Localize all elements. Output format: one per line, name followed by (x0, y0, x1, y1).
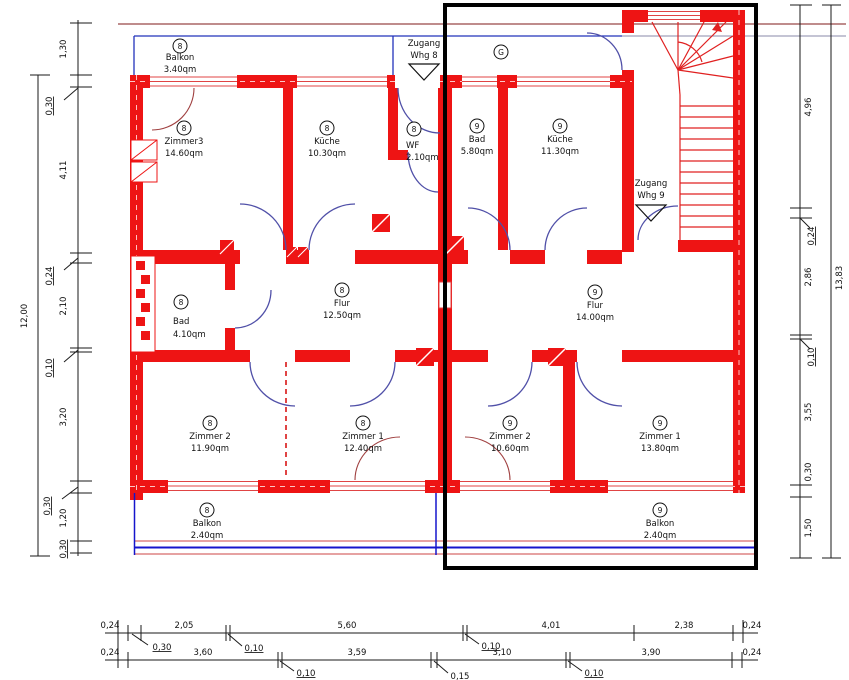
svg-text:Zimmer 1: Zimmer 1 (342, 432, 384, 442)
access-whg8: Zugang Whg 8 (408, 39, 441, 80)
svg-text:4,01: 4,01 (542, 621, 561, 631)
svg-text:0,10: 0,10 (807, 348, 817, 367)
svg-text:0,15: 0,15 (451, 672, 470, 680)
access-arrow-whg8 (409, 64, 439, 80)
svg-text:2.10qm: 2.10qm (406, 153, 439, 163)
svg-text:0,10: 0,10 (245, 644, 264, 654)
room-label-flur9: 9 Flur 14.00qm (576, 285, 614, 323)
room-label-flur8: 8 Flur 12.50qm (323, 283, 361, 321)
svg-text:4.10qm: 4.10qm (173, 330, 206, 340)
svg-text:Whg 8: Whg 8 (410, 51, 437, 61)
svg-text:8: 8 (208, 419, 213, 428)
room-label-bad8: 8 Bad 4.10qm (173, 295, 206, 340)
svg-text:3,59: 3,59 (348, 648, 367, 658)
svg-text:13.80qm: 13.80qm (641, 444, 679, 454)
svg-text:2.40qm: 2.40qm (644, 531, 677, 541)
svg-text:WF: WF (406, 141, 419, 151)
corridor-label: G (494, 45, 508, 59)
svg-text:1,30: 1,30 (59, 40, 69, 59)
svg-text:5.80qm: 5.80qm (461, 147, 494, 157)
svg-text:Zugang: Zugang (635, 179, 668, 189)
balcony-top (134, 36, 622, 75)
svg-text:3,60: 3,60 (194, 648, 213, 658)
svg-text:0,10: 0,10 (297, 669, 316, 679)
svg-text:Balkon: Balkon (166, 53, 195, 63)
svg-text:8: 8 (361, 419, 366, 428)
svg-text:4,11: 4,11 (59, 161, 69, 180)
svg-text:2,86: 2,86 (804, 268, 814, 287)
svg-text:Zimmer 2: Zimmer 2 (489, 432, 531, 442)
svg-text:12.40qm: 12.40qm (344, 444, 382, 454)
svg-text:11.90qm: 11.90qm (191, 444, 229, 454)
svg-text:8: 8 (325, 124, 330, 133)
room-label-zimmer2-8: 8 Zimmer 2 11.90qm (189, 416, 231, 454)
svg-text:0,24: 0,24 (45, 267, 55, 286)
svg-text:8: 8 (179, 298, 184, 307)
svg-text:9: 9 (658, 506, 663, 515)
room-label-balkon8-bottom: 8 Balkon 2.40qm (191, 503, 224, 541)
svg-text:9: 9 (593, 288, 598, 297)
room-label-balkon8-top: 8 Balkon 3.40qm (164, 39, 197, 75)
floor-plan: 8 Balkon 3.40qm 8 Zimmer3 14.60qm 8 Küch… (0, 0, 849, 680)
svg-text:3,20: 3,20 (59, 408, 69, 427)
dimension-left: 1,30 0,30 4,11 0,24 2,10 0,10 3,20 0,30 … (20, 20, 92, 558)
svg-text:12,00: 12,00 (20, 304, 30, 328)
svg-text:0,10: 0,10 (585, 669, 604, 679)
svg-text:13,83: 13,83 (835, 266, 845, 290)
svg-text:Balkon: Balkon (646, 519, 675, 529)
svg-text:14.00qm: 14.00qm (576, 313, 614, 323)
svg-text:Whg 9: Whg 9 (637, 191, 664, 201)
svg-text:Küche: Küche (547, 135, 573, 145)
svg-text:8: 8 (340, 286, 345, 295)
svg-text:4,96: 4,96 (804, 98, 814, 117)
room-label-balkon9-bottom: 9 Balkon 2.40qm (644, 503, 677, 541)
room-label-zimmer1-8: 8 Zimmer 1 12.40qm (342, 416, 384, 454)
svg-text:9: 9 (558, 122, 563, 131)
svg-text:0,30: 0,30 (59, 540, 69, 559)
room-label-kueche8: 8 Küche 10.30qm (308, 121, 346, 159)
svg-text:3,90: 3,90 (642, 648, 661, 658)
svg-text:Zimmer3: Zimmer3 (165, 137, 204, 147)
svg-text:1,20: 1,20 (59, 509, 69, 528)
svg-text:9: 9 (475, 122, 480, 131)
svg-text:0,10: 0,10 (45, 359, 55, 378)
svg-text:9: 9 (508, 419, 513, 428)
room-label-bad9: 9 Bad 5.80qm (461, 119, 494, 157)
room-label-zimmer2-9: 9 Zimmer 2 10.60qm (489, 416, 531, 454)
svg-text:10.60qm: 10.60qm (491, 444, 529, 454)
svg-text:5,60: 5,60 (338, 621, 357, 631)
svg-text:0,24: 0,24 (743, 621, 762, 631)
room-label-zimmer1-9: 9 Zimmer 1 13.80qm (639, 416, 681, 454)
svg-text:Bad: Bad (173, 317, 189, 327)
svg-text:0,24: 0,24 (743, 648, 762, 658)
svg-text:Küche: Küche (314, 137, 340, 147)
svg-text:0,30: 0,30 (45, 97, 55, 116)
walls (130, 10, 745, 500)
svg-text:0,24: 0,24 (101, 648, 120, 658)
svg-text:14.60qm: 14.60qm (165, 149, 203, 159)
svg-text:3,55: 3,55 (804, 403, 814, 422)
svg-text:0,30: 0,30 (153, 643, 172, 653)
svg-text:1,50: 1,50 (804, 519, 814, 538)
access-arrow-whg9 (636, 205, 666, 221)
svg-text:8: 8 (178, 42, 183, 51)
svg-text:2,05: 2,05 (175, 621, 194, 631)
svg-text:9: 9 (658, 419, 663, 428)
svg-text:Bad: Bad (469, 135, 485, 145)
dimension-bottom-row2: 0,24 3,60 0,10 3,59 0,15 3,10 0,10 3,90 … (101, 648, 762, 680)
svg-text:2,38: 2,38 (675, 621, 694, 631)
svg-text:Balkon: Balkon (193, 519, 222, 529)
svg-text:10.30qm: 10.30qm (308, 149, 346, 159)
room-labels: 8 Balkon 3.40qm 8 Zimmer3 14.60qm 8 Küch… (164, 39, 681, 541)
svg-text:3.40qm: 3.40qm (164, 65, 197, 75)
svg-text:Flur: Flur (334, 299, 351, 309)
svg-text:2.40qm: 2.40qm (191, 531, 224, 541)
svg-text:8: 8 (182, 124, 187, 133)
svg-text:Flur: Flur (587, 301, 604, 311)
room-label-kueche9: 9 Küche 11.30qm (541, 119, 579, 157)
svg-text:Zimmer 1: Zimmer 1 (639, 432, 681, 442)
svg-text:Zugang: Zugang (408, 39, 441, 49)
room-label-zimmer3-8: 8 Zimmer3 14.60qm (165, 121, 204, 159)
svg-text:0,24: 0,24 (101, 621, 120, 631)
svg-text:8: 8 (412, 125, 417, 134)
svg-text:Zimmer 2: Zimmer 2 (189, 432, 231, 442)
svg-text:0,30: 0,30 (43, 497, 53, 516)
svg-text:2,10: 2,10 (59, 297, 69, 316)
svg-text:3,10: 3,10 (493, 648, 512, 658)
room-label-wf8: 8 WF 2.10qm (406, 122, 439, 163)
svg-text:11.30qm: 11.30qm (541, 147, 579, 157)
svg-text:8: 8 (205, 506, 210, 515)
svg-text:12.50qm: 12.50qm (323, 311, 361, 321)
svg-text:G: G (498, 48, 504, 57)
dimension-right: 4,96 0,24 2,86 0,10 3,55 0,30 1,50 13,83 (790, 5, 845, 558)
svg-text:0,30: 0,30 (804, 463, 814, 482)
svg-text:0,24: 0,24 (807, 227, 817, 246)
